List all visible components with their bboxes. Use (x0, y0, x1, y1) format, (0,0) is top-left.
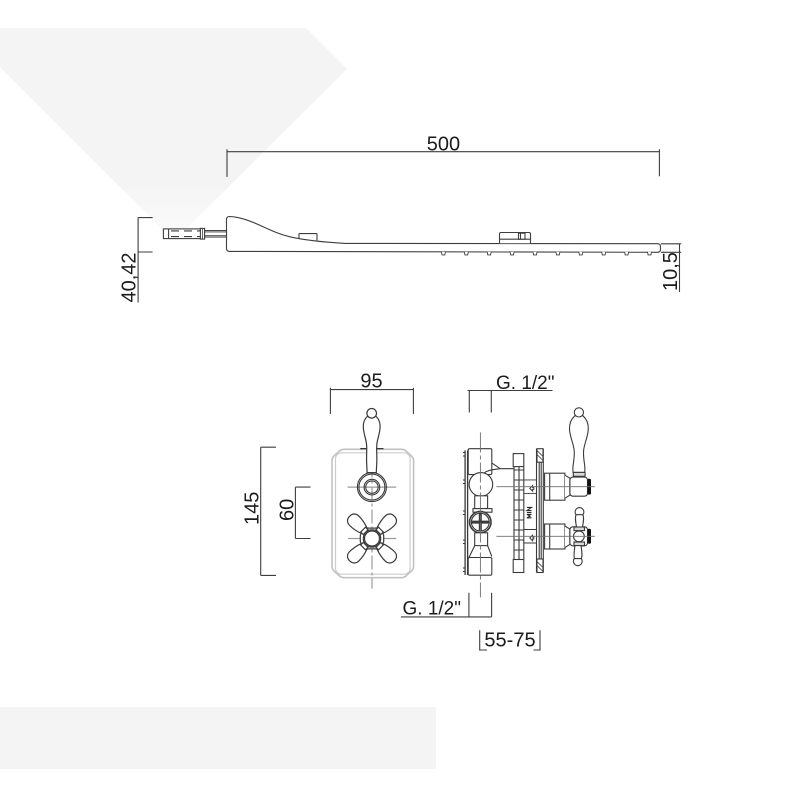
svg-text:40,42: 40,42 (119, 252, 141, 302)
svg-text:10,5: 10,5 (660, 252, 682, 291)
svg-text:55-75: 55-75 (484, 630, 535, 652)
svg-text:500: 500 (427, 134, 460, 156)
